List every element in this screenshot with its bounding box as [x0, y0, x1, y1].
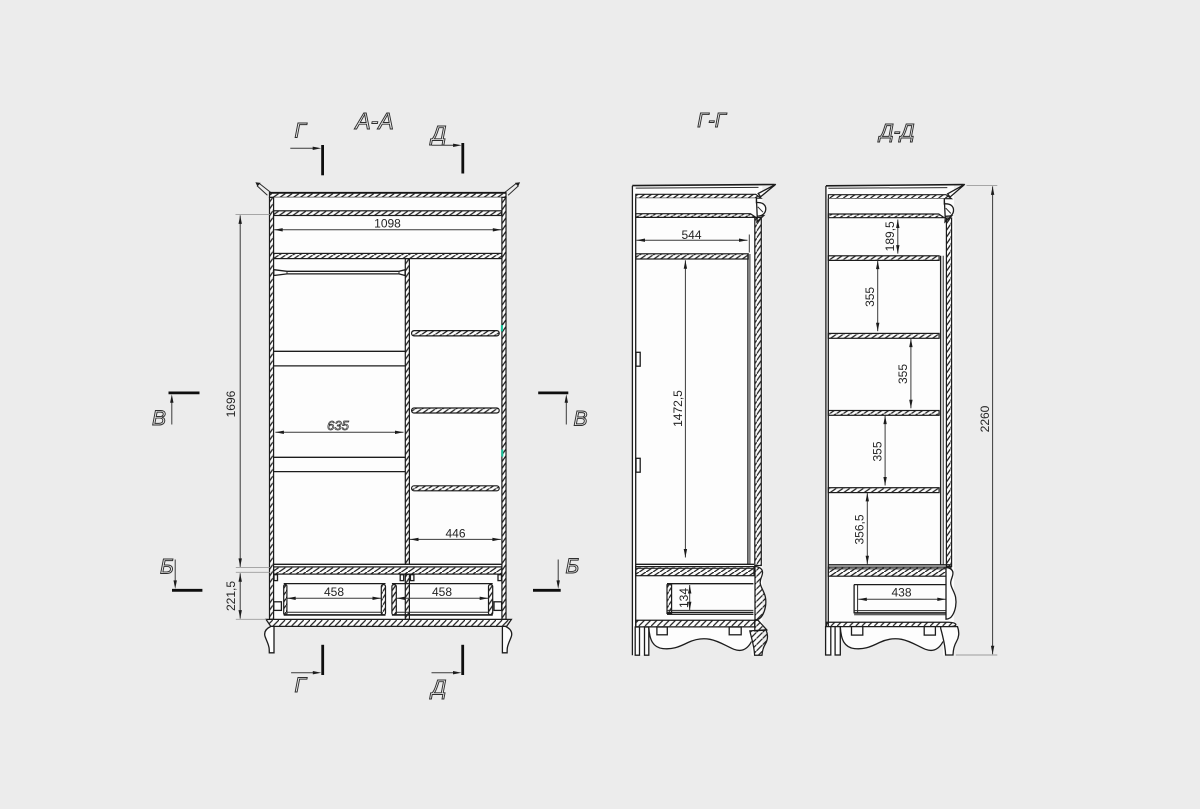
svg-text:458: 458 — [432, 585, 452, 599]
svg-text:446: 446 — [445, 526, 465, 540]
svg-text:635: 635 — [327, 418, 349, 433]
svg-text:Д-Д: Д-Д — [878, 121, 915, 143]
svg-text:221,5: 221,5 — [224, 581, 238, 611]
svg-text:355: 355 — [896, 364, 910, 384]
svg-text:Б: Б — [160, 556, 174, 579]
svg-text:Б: Б — [566, 555, 580, 578]
svg-text:2260: 2260 — [978, 405, 992, 432]
svg-text:134: 134 — [677, 588, 691, 608]
svg-text:Г: Г — [295, 674, 308, 697]
svg-text:Г: Г — [295, 120, 308, 143]
svg-text:1696: 1696 — [224, 390, 238, 417]
svg-text:355: 355 — [863, 287, 877, 307]
svg-text:Г-Г: Г-Г — [697, 110, 728, 132]
svg-text:355: 355 — [870, 441, 884, 461]
svg-text:В: В — [574, 408, 588, 431]
svg-text:189,5: 189,5 — [883, 221, 897, 251]
svg-text:А-А: А-А — [353, 108, 393, 134]
svg-text:В: В — [152, 407, 166, 430]
svg-text:Д: Д — [430, 123, 447, 146]
svg-text:Д: Д — [430, 677, 447, 700]
svg-text:356,5: 356,5 — [853, 514, 867, 544]
svg-text:544: 544 — [681, 228, 701, 242]
svg-text:1098: 1098 — [374, 217, 401, 231]
svg-text:438: 438 — [891, 586, 911, 600]
svg-text:458: 458 — [324, 585, 344, 599]
svg-text:1472,5: 1472,5 — [671, 390, 685, 427]
